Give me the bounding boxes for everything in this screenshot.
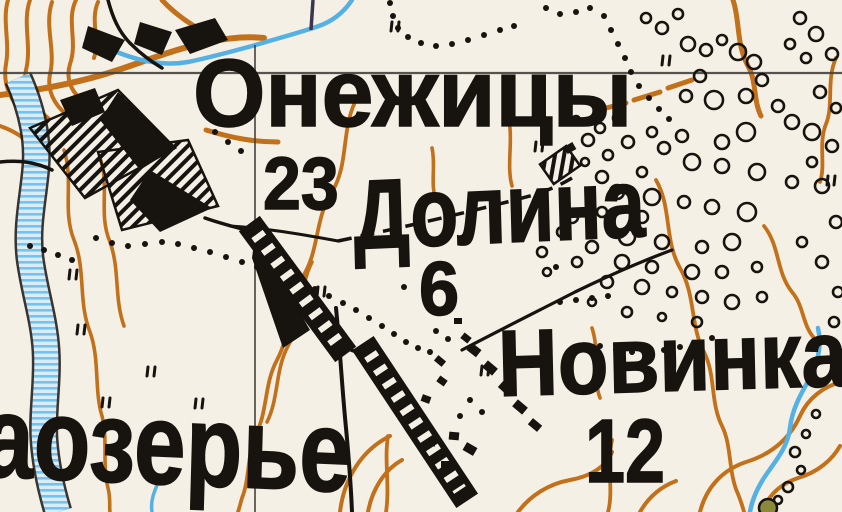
stone-circle — [802, 430, 810, 438]
trail-dot — [656, 106, 662, 112]
trail-dot — [340, 300, 346, 306]
trail-dot — [467, 397, 473, 403]
stone-circle — [747, 55, 761, 69]
stone-circle — [807, 157, 817, 167]
trail-dot — [387, 0, 393, 6]
marsh-tuft — [834, 176, 835, 185]
trail-dot — [608, 27, 614, 33]
trail-dot — [666, 116, 672, 122]
marsh-tuft — [488, 366, 489, 375]
stone-circle — [658, 142, 670, 154]
marsh-tuft — [84, 325, 85, 334]
stone-circle — [715, 135, 729, 149]
stone-circle — [752, 262, 762, 272]
stone-circle — [673, 9, 683, 19]
stone-circle — [705, 200, 719, 214]
trail-dot — [239, 259, 245, 265]
stone-circle — [678, 196, 690, 208]
stone-circle — [790, 447, 800, 457]
stone-circle — [696, 291, 708, 303]
stone-circle — [656, 22, 668, 34]
stone-circle — [705, 91, 723, 109]
stone-circle — [785, 115, 799, 129]
map-canvas[interactable]: Онежицы 23 Долина 6 Новинка 12 аозерье — [0, 0, 842, 512]
building — [434, 355, 446, 367]
stone-circle — [715, 159, 729, 173]
trail-dot — [497, 27, 503, 33]
stone-circle — [831, 103, 841, 113]
building — [421, 394, 432, 404]
stone-circle — [816, 256, 828, 268]
trail-dot — [401, 284, 407, 290]
pond-circle — [759, 499, 777, 512]
stone-circle — [737, 123, 755, 141]
stone-circle — [826, 140, 838, 152]
trail-dot — [553, 264, 559, 270]
marsh-tuft — [69, 270, 70, 279]
marsh-tuft — [662, 56, 663, 65]
building — [436, 376, 447, 387]
stone-circle — [804, 124, 820, 140]
contour-line — [820, 58, 836, 182]
stone-circle — [809, 27, 823, 41]
trail-dot — [636, 83, 642, 89]
grid-tick — [311, 0, 313, 30]
stone-circle — [667, 287, 677, 297]
trail-dot — [69, 257, 75, 263]
marsh-tuft — [324, 287, 325, 296]
stone-circle — [830, 216, 842, 228]
stone-circle — [772, 100, 784, 112]
trail-dot — [159, 239, 165, 245]
stone-circle — [794, 12, 806, 24]
elevation-label-23: 23 — [263, 147, 339, 221]
building — [449, 432, 460, 441]
stone-circle — [739, 89, 753, 103]
trail-dot — [427, 349, 433, 355]
marsh-tuft — [154, 367, 155, 376]
trail-dot — [573, 9, 579, 15]
trail-dot — [109, 240, 115, 246]
building — [460, 332, 471, 343]
contour-line — [386, 436, 388, 512]
trail-dot — [41, 247, 47, 253]
trail-dot — [366, 315, 372, 321]
marsh-tuft — [481, 366, 482, 375]
trail-dot — [481, 32, 487, 38]
marsh-tuft — [147, 367, 148, 376]
marsh-tuft — [391, 22, 392, 31]
stone-circle — [694, 70, 706, 82]
trail-dot — [403, 339, 409, 345]
marsh-tuft — [77, 325, 78, 334]
trail-dot — [379, 323, 385, 329]
trail-dot — [557, 11, 563, 17]
stone-circle — [644, 189, 660, 205]
trail-dot — [175, 241, 181, 247]
place-label-onezhitsy: Онежицы — [193, 46, 632, 142]
trail-dot — [207, 249, 213, 255]
stone-circle — [716, 266, 728, 278]
stone-circle — [685, 265, 699, 279]
stone-circle — [635, 280, 649, 294]
trail-dot — [543, 5, 549, 11]
stone-circle — [814, 86, 826, 98]
stone-circle — [680, 90, 692, 102]
contour-line — [668, 80, 692, 88]
place-label-aozerye: аозерье — [0, 378, 353, 510]
stone-circle — [757, 292, 767, 302]
building — [441, 461, 451, 469]
trail-dot — [191, 245, 197, 251]
stone-circle — [543, 268, 551, 276]
stone-circle — [646, 261, 658, 273]
stone-circle — [684, 154, 700, 170]
marsh-tuft — [398, 22, 399, 31]
building — [528, 418, 542, 432]
trail-dot — [390, 13, 396, 19]
stone-circle — [786, 176, 798, 188]
trail-dot — [55, 252, 61, 258]
trail-dot — [27, 243, 33, 249]
trail-dot — [142, 241, 148, 247]
stone-circle — [833, 287, 842, 297]
trail-dot — [479, 409, 485, 415]
elevation-label-12: 12 — [585, 407, 665, 497]
stone-circle — [801, 53, 811, 63]
marsh-tuft — [317, 287, 318, 296]
trail-dot — [457, 413, 463, 419]
stone-circle — [812, 410, 820, 418]
building — [427, 440, 435, 447]
trail-dot — [93, 235, 99, 241]
trail-dot — [445, 336, 451, 342]
trail-dot — [326, 293, 332, 299]
trail-dot — [415, 345, 421, 351]
trail-dot — [125, 243, 131, 249]
trail-dot — [223, 254, 229, 260]
stone-circle — [738, 203, 756, 221]
trail-dot — [587, 5, 593, 11]
stone-circle — [681, 37, 695, 51]
stone-circle — [785, 39, 795, 49]
trail-dot — [353, 307, 359, 313]
elevation-label-6: 6 — [419, 252, 459, 328]
place-label-dolina: Долина — [352, 153, 646, 264]
trail-dot — [646, 95, 652, 101]
marsh-tuft — [76, 270, 77, 279]
stone-circle — [696, 241, 708, 253]
stone-circle — [588, 298, 596, 306]
stone-circle — [647, 127, 657, 137]
trail-dot — [391, 331, 397, 337]
place-label-novinka: Новинка — [497, 307, 842, 411]
settlement-blob — [82, 26, 125, 62]
building — [463, 442, 478, 456]
stone-circle — [676, 130, 688, 142]
trail-dot — [601, 13, 607, 19]
stone-circle — [717, 35, 727, 45]
stone-circle — [797, 237, 807, 247]
trail-dot — [573, 297, 579, 303]
marsh-tuft — [827, 176, 828, 185]
stone-circle — [756, 74, 768, 86]
stone-circle — [826, 48, 838, 60]
marsh-tuft — [669, 56, 670, 65]
trail-dot — [511, 23, 517, 29]
stone-circle — [700, 44, 712, 56]
stone-circle — [749, 164, 765, 180]
stone-circle — [797, 466, 805, 474]
stone-circle — [724, 234, 740, 250]
stone-circle — [655, 235, 669, 249]
stone-circle — [641, 13, 651, 23]
trail-dot — [605, 293, 611, 299]
trail-dot — [238, 148, 244, 154]
